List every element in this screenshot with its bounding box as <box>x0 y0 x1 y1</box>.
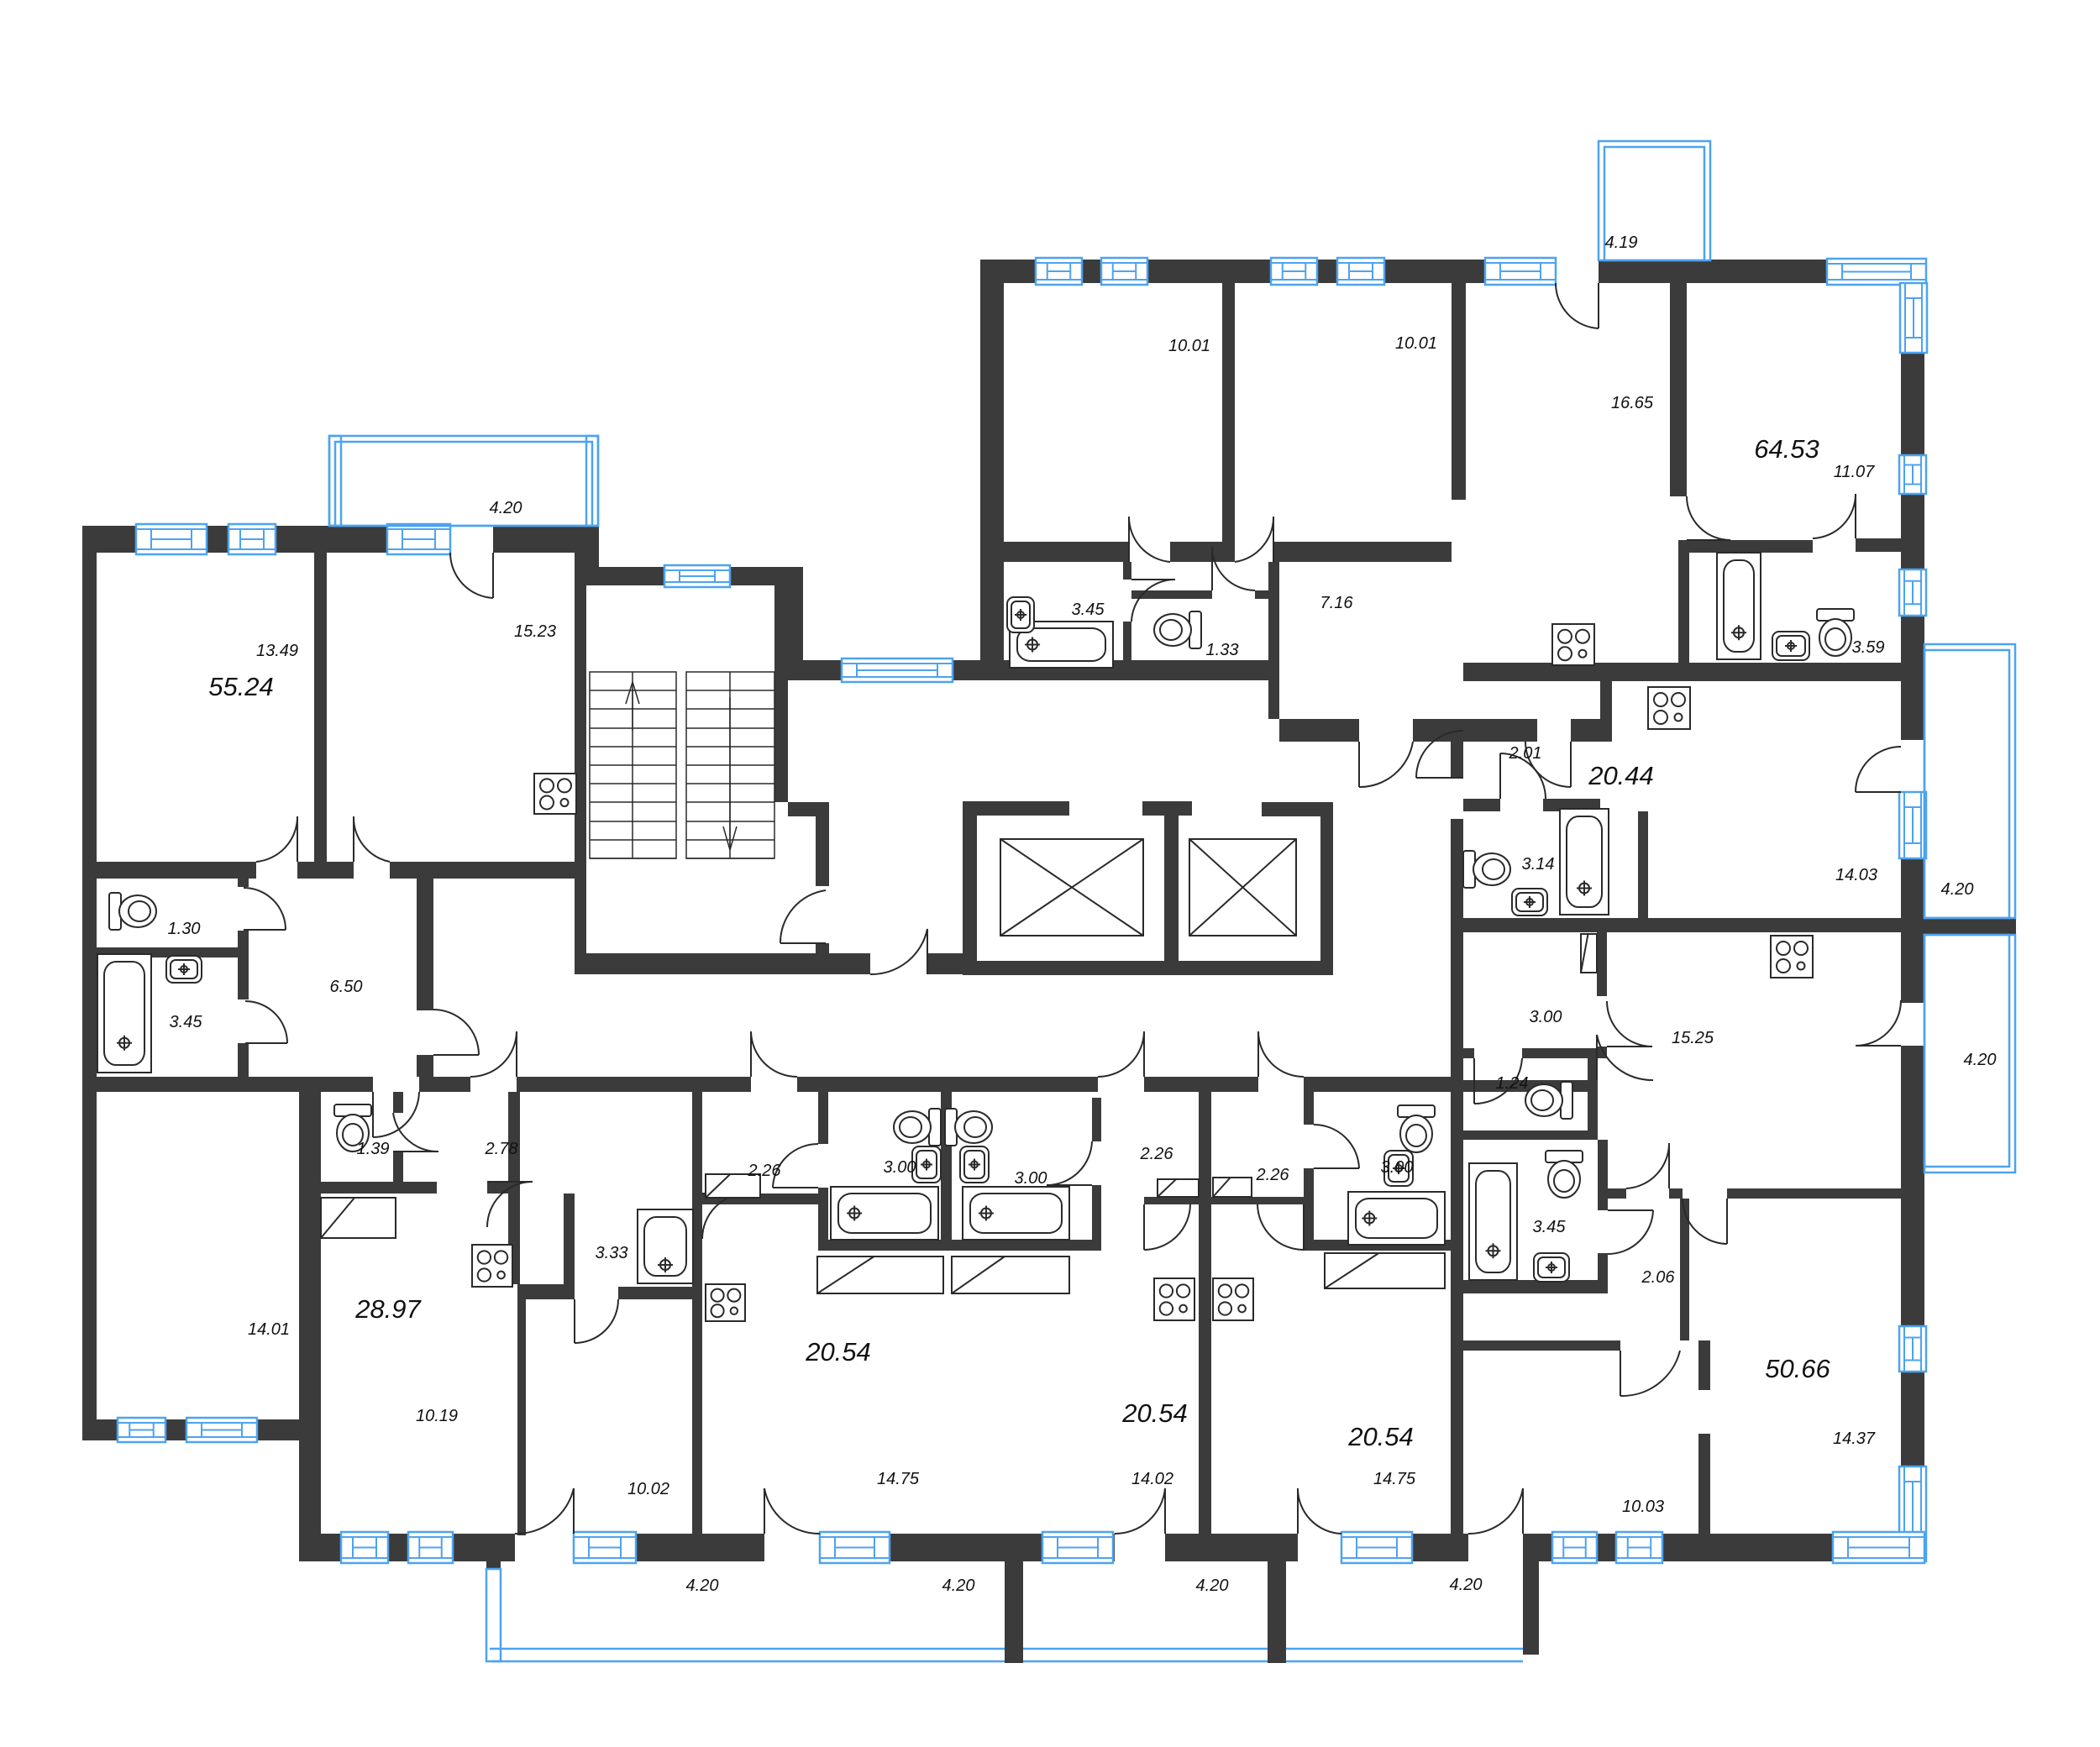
svg-text:14.01: 14.01 <box>248 1320 290 1339</box>
svg-text:3.00: 3.00 <box>884 1158 916 1177</box>
svg-text:6.50: 6.50 <box>330 978 363 996</box>
svg-text:15.25: 15.25 <box>1672 1029 1714 1047</box>
svg-text:28.97: 28.97 <box>354 1294 422 1324</box>
svg-text:3.00: 3.00 <box>1381 1158 1414 1177</box>
svg-text:14.37: 14.37 <box>1833 1430 1876 1448</box>
svg-text:50.66: 50.66 <box>1765 1354 1830 1383</box>
svg-text:20.44: 20.44 <box>1588 761 1654 790</box>
svg-text:4.20: 4.20 <box>942 1576 975 1595</box>
svg-text:3.14: 3.14 <box>1522 855 1555 873</box>
svg-text:2.26: 2.26 <box>748 1162 782 1180</box>
svg-text:2.06: 2.06 <box>1641 1268 1676 1287</box>
svg-text:14.75: 14.75 <box>877 1470 920 1488</box>
svg-text:10.02: 10.02 <box>627 1480 669 1498</box>
svg-text:1.33: 1.33 <box>1206 641 1239 659</box>
svg-text:4.20: 4.20 <box>1450 1576 1483 1594</box>
svg-text:10.19: 10.19 <box>416 1407 458 1425</box>
svg-text:11.07: 11.07 <box>1834 463 1875 481</box>
svg-text:55.24: 55.24 <box>208 672 274 701</box>
svg-text:14.75: 14.75 <box>1373 1470 1416 1488</box>
svg-text:7.16: 7.16 <box>1320 594 1354 612</box>
svg-text:14.02: 14.02 <box>1131 1470 1173 1488</box>
svg-text:2.26: 2.26 <box>1140 1145 1174 1163</box>
svg-text:4.20: 4.20 <box>1941 880 1974 899</box>
svg-text:3.59: 3.59 <box>1852 638 1885 657</box>
svg-text:1.30: 1.30 <box>168 920 201 938</box>
svg-text:1.39: 1.39 <box>357 1140 390 1158</box>
svg-text:4.20: 4.20 <box>1964 1051 1997 1069</box>
svg-text:20.54: 20.54 <box>805 1337 871 1367</box>
svg-text:3.45: 3.45 <box>1533 1218 1567 1236</box>
svg-text:4.20: 4.20 <box>686 1576 719 1595</box>
svg-text:10.01: 10.01 <box>1395 334 1437 353</box>
svg-text:20.54: 20.54 <box>1121 1398 1188 1428</box>
svg-text:2.01: 2.01 <box>1509 744 1542 763</box>
svg-text:64.53: 64.53 <box>1754 434 1819 464</box>
svg-text:4.20: 4.20 <box>1196 1576 1229 1595</box>
svg-text:10.03: 10.03 <box>1622 1498 1664 1516</box>
svg-text:3.33: 3.33 <box>596 1244 628 1262</box>
svg-text:2.78: 2.78 <box>485 1140 518 1158</box>
svg-text:1.24: 1.24 <box>1496 1074 1529 1093</box>
svg-text:2.26: 2.26 <box>1256 1166 1290 1184</box>
svg-text:13.49: 13.49 <box>256 642 298 660</box>
svg-text:20.54: 20.54 <box>1347 1422 1414 1451</box>
svg-text:10.01: 10.01 <box>1168 337 1210 355</box>
svg-text:3.00: 3.00 <box>1530 1008 1562 1026</box>
svg-text:16.65: 16.65 <box>1611 394 1654 412</box>
svg-text:4.19: 4.19 <box>1605 233 1638 252</box>
svg-text:3.00: 3.00 <box>1015 1169 1047 1188</box>
svg-text:14.03: 14.03 <box>1835 866 1877 884</box>
svg-text:3.45: 3.45 <box>170 1013 203 1031</box>
svg-text:4.20: 4.20 <box>490 499 522 517</box>
svg-text:3.45: 3.45 <box>1072 601 1105 619</box>
svg-text:15.23: 15.23 <box>514 622 556 641</box>
